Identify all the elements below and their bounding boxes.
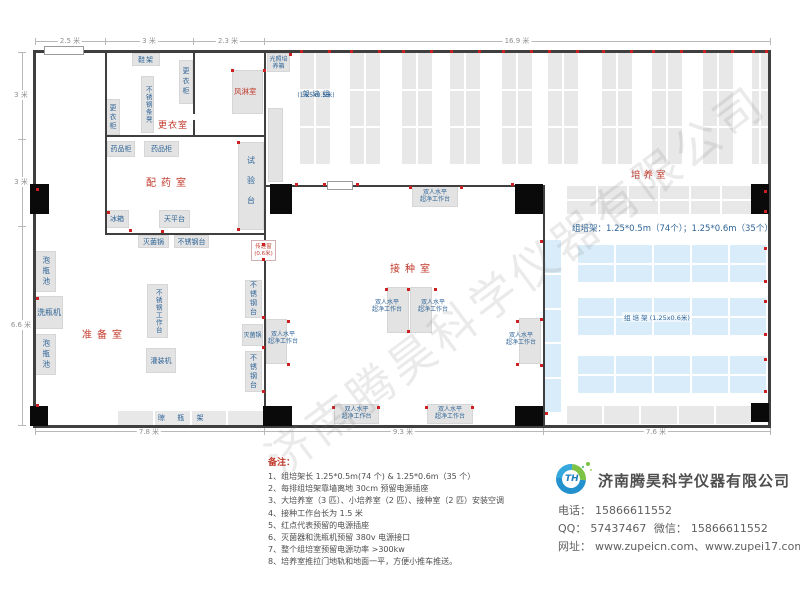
culture-rack-small (300, 53, 330, 164)
power-outlet-dot (545, 412, 548, 415)
rack-cell (719, 91, 733, 127)
power-outlet-dot (764, 190, 767, 193)
note-item: 8、培养室推拉门地轨和地面一平，方便小推车推送。 (268, 556, 558, 568)
dim-tick (18, 226, 26, 227)
rack-cell (692, 245, 728, 263)
clean-bench-label: 双人水平超净工作台 (366, 300, 408, 313)
rack-cell (545, 310, 561, 343)
clean-bench-label-line: 超净工作台 (366, 307, 408, 314)
power-outlet-dot (129, 229, 132, 232)
phone-line: 电话：15866611552 (558, 502, 676, 518)
wall (266, 185, 543, 187)
rack-cell (668, 91, 682, 127)
rack-cell (761, 53, 768, 89)
rack-cell (366, 128, 380, 164)
rack-cell (518, 128, 532, 164)
rack-cell (418, 91, 432, 127)
furniture-medicine-cabinet: 药品柜 (107, 141, 135, 157)
power-outlet-dot (323, 183, 326, 186)
rack-cell (668, 53, 682, 89)
dimension-label-top: 16.9 米 (503, 36, 532, 46)
power-outlet-dot (287, 363, 290, 366)
furniture-steel-table: 不锈钢台 (245, 351, 262, 392)
rack-cell (654, 376, 690, 394)
rack-cell (654, 356, 690, 374)
pillar (515, 184, 543, 214)
culture-rack-large (578, 356, 766, 393)
rack-cell (719, 128, 733, 164)
rack-cell (660, 201, 689, 214)
rack-cell (692, 265, 728, 283)
power-outlet-dot (377, 406, 380, 409)
power-outlet-dot (630, 50, 633, 53)
power-outlet-dot (36, 188, 39, 191)
culture-rack-small (502, 53, 532, 164)
note-item: 7、整个组培室预留电源功率 >300kw (268, 544, 558, 556)
power-outlet-dot (262, 258, 265, 261)
rack-cell (578, 376, 614, 394)
rack-cell (730, 265, 766, 283)
note-item: 1、组培架长 1.25*0.5m(74 个) & 1.25*0.6m（35 个） (268, 471, 558, 483)
rack-cell (316, 53, 330, 89)
wall (33, 425, 771, 428)
furniture-bottle-washer: 洗瓶机 (35, 296, 63, 329)
rack-cell (564, 91, 578, 127)
rack-cell (350, 128, 364, 164)
power-outlet-dot (576, 50, 579, 53)
power-outlet-dot (516, 320, 519, 323)
rack-cell (660, 186, 689, 199)
culture-rack-small (652, 53, 682, 164)
rack-cell (466, 91, 480, 127)
furniture-steel-bench: 不锈钢条凳 (141, 76, 154, 133)
rack-cell (466, 128, 480, 164)
rack-cell (691, 186, 720, 199)
power-outlet-dot (703, 50, 706, 53)
power-outlet-dot (262, 390, 265, 393)
power-outlet-dot (680, 50, 683, 53)
rack-cell (402, 91, 416, 127)
rack-cell (502, 128, 516, 164)
furniture-block (268, 108, 283, 182)
power-outlet-dot (516, 363, 519, 366)
room-label-culture: 培养室 (631, 167, 669, 181)
power-outlet-dot (478, 50, 481, 53)
phone-value: 15866611552 (595, 504, 672, 517)
rack-cell (598, 201, 627, 214)
power-outlet-dot (540, 318, 543, 321)
power-outlet-dot (764, 247, 767, 250)
power-outlet-dot (407, 288, 410, 291)
rack-cell (730, 298, 766, 316)
wechat-label: 微信： (654, 522, 687, 535)
furniture-sterilizer: 灭菌锅 (138, 235, 169, 248)
rack-cell (691, 201, 720, 214)
rack-cell (564, 128, 578, 164)
qq-wechat-line: QQ：57437467 微信：15866611552 (558, 520, 772, 536)
rack-cell (578, 356, 614, 374)
power-outlet-dot (652, 50, 655, 53)
rack-cell (730, 245, 766, 263)
dimension-line-left (22, 52, 23, 425)
clean-bench-label-line: 超净工作台 (412, 307, 454, 314)
rack-cell (719, 53, 733, 89)
clean-bench-label-line: 超净工作台 (412, 197, 458, 204)
power-outlet-dot (765, 50, 768, 53)
door (327, 181, 353, 190)
power-outlet-dot (289, 53, 292, 56)
rack-cell (545, 275, 561, 308)
rack-cell (703, 91, 717, 127)
power-outlet-dot (764, 300, 767, 303)
rack-cell (502, 91, 516, 127)
rack-cell (652, 53, 666, 89)
furniture-filler: 灌装机 (146, 348, 176, 373)
rack-cell (730, 318, 766, 336)
culture-rack-small (402, 53, 432, 164)
rack-cell (450, 128, 464, 164)
rack-cell (518, 53, 532, 89)
rack-cell (730, 356, 766, 374)
wall (193, 120, 195, 135)
rack-cell (692, 376, 728, 394)
culture-rack-small (350, 53, 380, 164)
rack-cell (316, 128, 330, 164)
rack-cell (652, 128, 666, 164)
rack-cell (604, 406, 639, 424)
dim-tick (18, 139, 26, 140)
room-label-dressing: 更衣室 (158, 118, 188, 131)
dimension-label-bottom: 7.6 米 (644, 427, 668, 437)
rack-cell (118, 411, 153, 426)
rack-cell (722, 201, 751, 214)
website-line: 网址：www.zupeicn.com、www.zupei17.com (558, 538, 800, 554)
dim-tick (770, 38, 771, 45)
rack-cell (564, 53, 578, 89)
furniture-balance: 天平台 (159, 210, 190, 228)
furniture-shoe-rack: 鞋架 (132, 53, 160, 66)
rack-cell (548, 128, 562, 164)
power-outlet-dot (107, 211, 110, 214)
room-label-inoculation: 接种室 (390, 260, 435, 275)
furniture-medicine-cabinet: 药品柜 (144, 141, 179, 157)
power-outlet-dot (356, 183, 359, 186)
clean-bench-label-line: 超净工作台 (427, 414, 473, 421)
furniture-steel-table: 不锈钢台 (174, 235, 209, 248)
power-outlet-dot (262, 316, 265, 319)
power-outlet-dot (231, 69, 234, 72)
rack-cell (350, 91, 364, 127)
rack-cell (722, 186, 751, 199)
power-outlet-dot (407, 330, 410, 333)
furniture-test-bench: 试验台 (238, 142, 264, 230)
dim-tick (35, 38, 36, 45)
power-outlet-dot (764, 210, 767, 213)
pillar (30, 406, 48, 426)
door (44, 46, 84, 55)
wall (105, 52, 107, 235)
furniture-steel-worktable: 不锈钢工作台 (147, 284, 168, 338)
wall (105, 135, 266, 137)
rack-cell (418, 128, 432, 164)
rack-cell (300, 53, 314, 89)
rack-cell (752, 128, 759, 164)
logo-leaf-dots (586, 462, 590, 466)
rack-cell (668, 128, 682, 164)
power-outlet-dot (752, 50, 755, 53)
rack-cell (616, 356, 652, 374)
dim-tick (264, 38, 265, 45)
dim-tick (18, 52, 26, 53)
rack-cell (629, 186, 658, 199)
power-outlet-dot (460, 186, 463, 189)
power-outlet-dot (434, 288, 437, 291)
pillar (30, 184, 49, 214)
rack-cell (616, 245, 652, 263)
rack-cell (366, 91, 380, 127)
rack-cell (502, 53, 516, 89)
rack-cell (752, 53, 759, 89)
power-outlet-dot (328, 50, 331, 53)
power-outlet-dot (409, 186, 412, 189)
web-value: www.zupeicn.com、www.zupei17.com (595, 540, 800, 553)
dim-tick (543, 428, 544, 435)
rack-cell (652, 91, 666, 127)
power-outlet-dot (402, 50, 405, 53)
dimension-label-bottom: 9.3 米 (391, 427, 415, 437)
wall (193, 52, 195, 114)
clean-bench-label-line: 超净工作台 (334, 414, 379, 421)
rack-cell (545, 344, 561, 377)
dim-tick (264, 428, 265, 435)
wechat-value: 15866611552 (691, 522, 768, 535)
dimension-label-top: 2.3 米 (216, 36, 240, 46)
furniture-soak-pool: 泡瓶池 (35, 334, 56, 375)
transfer-window-label: (0.6米) (252, 251, 275, 258)
room-label-prep: 准备室 (82, 326, 127, 341)
dim-tick (193, 38, 194, 45)
rack-cell (578, 298, 614, 316)
power-outlet-dot (262, 346, 265, 349)
clean-bench-label: 双人水平超净工作台 (262, 332, 304, 345)
company-name: 济南腾昊科学仪器有限公司 (598, 470, 790, 491)
note-item: 4、接种工作台长为 1.5 米 (268, 508, 558, 520)
company-logo-icon: TH (556, 464, 588, 496)
culture-rack-row (567, 406, 751, 424)
power-outlet-dot (764, 333, 767, 336)
rack-cell (618, 91, 632, 127)
power-outlet-dot (161, 230, 164, 233)
furniture-locker: 更衣柜 (106, 99, 120, 135)
rack-cell (761, 91, 768, 127)
power-outlet-dot (332, 406, 335, 409)
rack-spec-line: 组培架：1.25*0.5m（74个）；1.25*0.6m（35个） (572, 222, 773, 234)
furniture-steel-table: 不锈钢台 (245, 280, 262, 318)
furniture-soak-pool: 泡瓶池 (35, 251, 56, 292)
rack-cell (450, 91, 464, 127)
clean-bench-label: 双人水平超净工作台 (500, 333, 542, 346)
clean-bench-label: 双人水平超净工作台 (412, 300, 454, 313)
room-label-air-shower: 风淋室 (234, 86, 257, 97)
rack-cell (567, 201, 596, 214)
rack-cell (616, 265, 652, 283)
pillar (515, 406, 543, 426)
rack-cell (418, 53, 432, 89)
note-item: 3、大培养室（3 匹）、小培养室（2 匹）、接种室（2 匹）安装空调 (268, 495, 558, 507)
power-outlet-dot (540, 240, 543, 243)
rack-cell (679, 406, 714, 424)
note-item: 5、红点代表预留的电源插座 (268, 520, 558, 532)
rack-cell (629, 201, 658, 214)
rack-cell (402, 53, 416, 89)
rack-cell (703, 53, 717, 89)
floorplan-canvas: 2.5 米3 米2.3 米16.9 米3 米3 米6.6 米7.8 米9.3 米… (0, 0, 800, 600)
clean-bench-label: 双人水平超净工作台 (334, 407, 379, 420)
pillar (751, 403, 769, 422)
culture-rack-large (578, 245, 766, 282)
note-item: 2、每排组培架靠墙离地 30cm 预留电源插座 (268, 483, 558, 495)
rack-cell (466, 53, 480, 89)
dimension-label-left: 6.6 米 (9, 320, 33, 330)
wall (543, 185, 545, 425)
rack-cell (548, 91, 562, 127)
rack-cell (602, 53, 616, 89)
power-outlet-dot (237, 141, 240, 144)
power-outlet-dot (540, 364, 543, 367)
clean-bench-label-line: 超净工作台 (262, 339, 304, 346)
rack-cell (616, 376, 652, 394)
logo-monogram: TH (565, 474, 579, 484)
power-outlet-dot (263, 69, 266, 72)
power-outlet-dot (548, 50, 551, 53)
dimension-label-bottom: 7.8 米 (137, 427, 161, 437)
rack-cell (761, 128, 768, 164)
rack-cell (598, 186, 627, 199)
room-label-dispensing: 配药室 (146, 174, 191, 189)
dim-tick (18, 425, 26, 426)
clean-bench-label: 双人水平超净工作台 (412, 190, 458, 203)
rack-cell (703, 128, 717, 164)
clean-bench-label: 双人水平超净工作台 (427, 407, 473, 420)
wall (264, 52, 266, 425)
rack-large-label: 组 培 架 (1.25x0.6米) (622, 312, 692, 322)
wall (33, 50, 36, 428)
clean-bench-label-line: 超净工作台 (500, 340, 542, 347)
culture-rack-row (567, 186, 751, 214)
power-outlet-dot (295, 183, 298, 186)
dimension-label-top: 2.5 米 (58, 36, 82, 46)
power-outlet-dot (425, 406, 428, 409)
rack-cell (692, 298, 728, 316)
power-outlet-dot (511, 183, 514, 186)
rack-cell (654, 245, 690, 263)
notes-list: 1、组培架长 1.25*0.5m(74 个) & 1.25*0.6m（35 个）… (268, 471, 558, 569)
rack-cell (567, 406, 602, 424)
power-outlet-dot (287, 320, 290, 323)
power-outlet-dot (450, 50, 453, 53)
rack-cell (350, 53, 364, 89)
pillar (270, 184, 292, 214)
notes-heading: 备注： (268, 455, 558, 468)
furniture-light-incubator: 光照培养箱 (267, 53, 290, 72)
rack-cell (450, 53, 464, 89)
rack-cell (602, 91, 616, 127)
power-outlet-dot (764, 390, 767, 393)
power-outlet-dot (378, 50, 381, 53)
rack-cell (228, 411, 263, 426)
rack-cell (366, 53, 380, 89)
drying-rack-label: 晾 瓶 架 (158, 413, 208, 423)
rack-cell (545, 379, 561, 412)
power-outlet-dot (764, 280, 767, 283)
furniture-locker: 更衣柜 (179, 60, 193, 104)
pillar (263, 406, 292, 426)
rack-cell (578, 245, 614, 263)
culture-rack-small (602, 53, 632, 164)
power-outlet-dot (471, 406, 474, 409)
power-outlet-dot (300, 50, 303, 53)
dim-tick (770, 428, 771, 435)
power-outlet-dot (350, 50, 353, 53)
power-outlet-dot (530, 50, 533, 53)
rack-cell (752, 91, 759, 127)
rack-cell (618, 53, 632, 89)
web-label: 网址： (558, 540, 591, 553)
rack-cell (618, 128, 632, 164)
power-outlet-dot (36, 404, 39, 407)
qq-label: QQ： (558, 522, 586, 535)
dimension-label-left: 3 米 (12, 90, 30, 100)
furniture-sterilizer: 灭菌锅 (242, 324, 263, 346)
rack-cell (300, 128, 314, 164)
rack-cell (578, 318, 614, 336)
rack-cell (602, 128, 616, 164)
rack-cell (730, 376, 766, 394)
phone-label: 电话： (558, 504, 591, 517)
culture-rack-small (450, 53, 480, 164)
culture-rack-small (703, 53, 733, 164)
notes-section: 备注： 1、组培架长 1.25*0.5m(74 个) & 1.25*0.6m（3… (268, 455, 558, 569)
power-outlet-dot (385, 288, 388, 291)
wall (768, 50, 771, 428)
rack-cell (548, 53, 562, 89)
rack-cell (641, 406, 676, 424)
power-outlet-dot (602, 50, 605, 53)
culture-rack-small (752, 53, 768, 164)
power-outlet-dot (502, 50, 505, 53)
qq-value: 57437467 (590, 522, 646, 535)
culture-rack-small (548, 53, 578, 164)
dim-tick (105, 38, 106, 45)
rack-cell (654, 265, 690, 283)
power-outlet-dot (430, 50, 433, 53)
power-outlet-dot (36, 297, 39, 300)
dimension-label-left: 3 米 (12, 177, 30, 187)
note-item: 6、灭菌器和洗瓶机预留 380v 电源接口 (268, 532, 558, 544)
rack-cell (578, 265, 614, 283)
wall (105, 233, 266, 235)
culture-rack-large (545, 240, 561, 412)
rack-cell (545, 240, 561, 273)
power-outlet-dot (731, 50, 734, 53)
dim-tick (35, 428, 36, 435)
power-outlet-dot (262, 243, 265, 246)
rack-cell (692, 318, 728, 336)
rack-cell (402, 128, 416, 164)
rack-cell (716, 406, 751, 424)
power-outlet-dot (764, 358, 767, 361)
rack-cell (518, 91, 532, 127)
